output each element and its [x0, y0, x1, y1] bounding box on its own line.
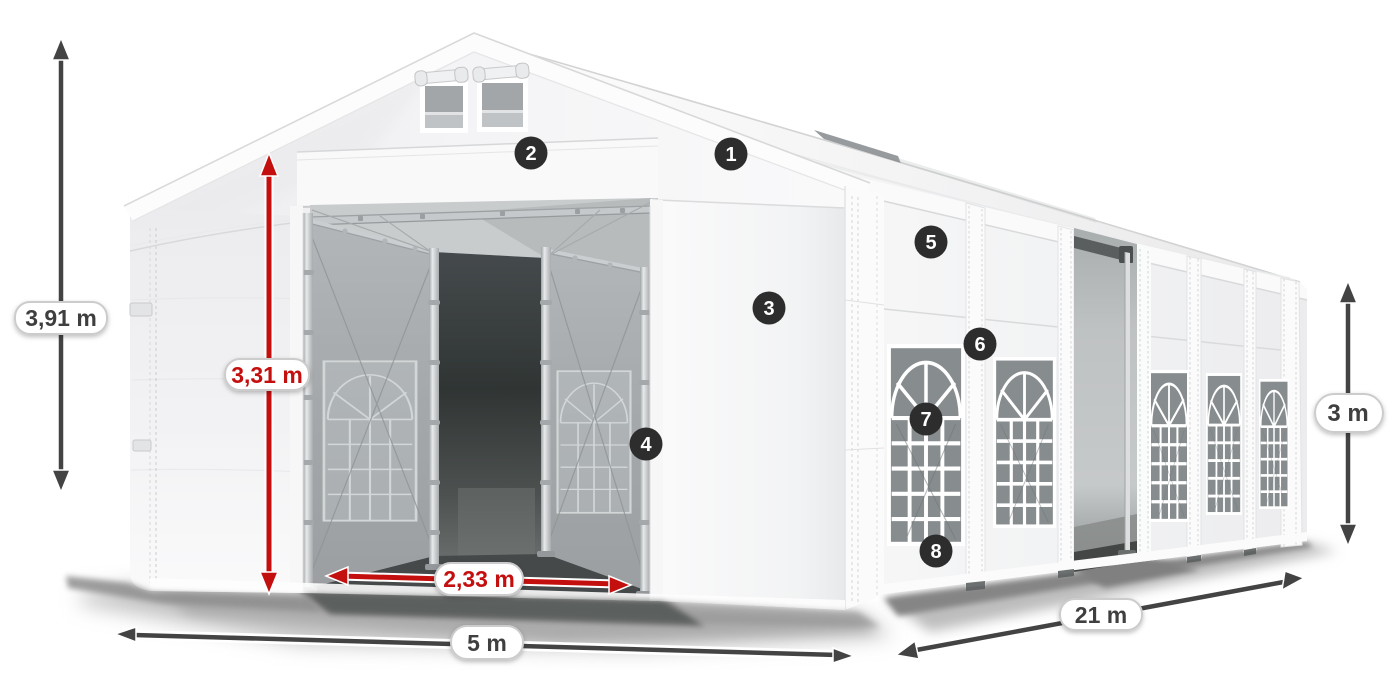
svg-text:3 m: 3 m [1327, 400, 1368, 427]
svg-text:1: 1 [725, 144, 736, 166]
svg-text:8: 8 [930, 541, 941, 563]
svg-text:4: 4 [640, 434, 652, 456]
svg-text:5: 5 [925, 232, 936, 254]
svg-text:7: 7 [920, 409, 931, 431]
svg-text:5 m: 5 m [467, 630, 507, 656]
svg-text:2,33 m: 2,33 m [443, 566, 515, 592]
svg-text:21 m: 21 m [1075, 602, 1127, 628]
svg-text:2: 2 [525, 143, 536, 165]
svg-text:6: 6 [974, 334, 985, 356]
svg-text:3,31 m: 3,31 m [231, 362, 303, 388]
svg-text:3,91 m: 3,91 m [25, 305, 97, 331]
svg-text:3: 3 [763, 298, 774, 320]
